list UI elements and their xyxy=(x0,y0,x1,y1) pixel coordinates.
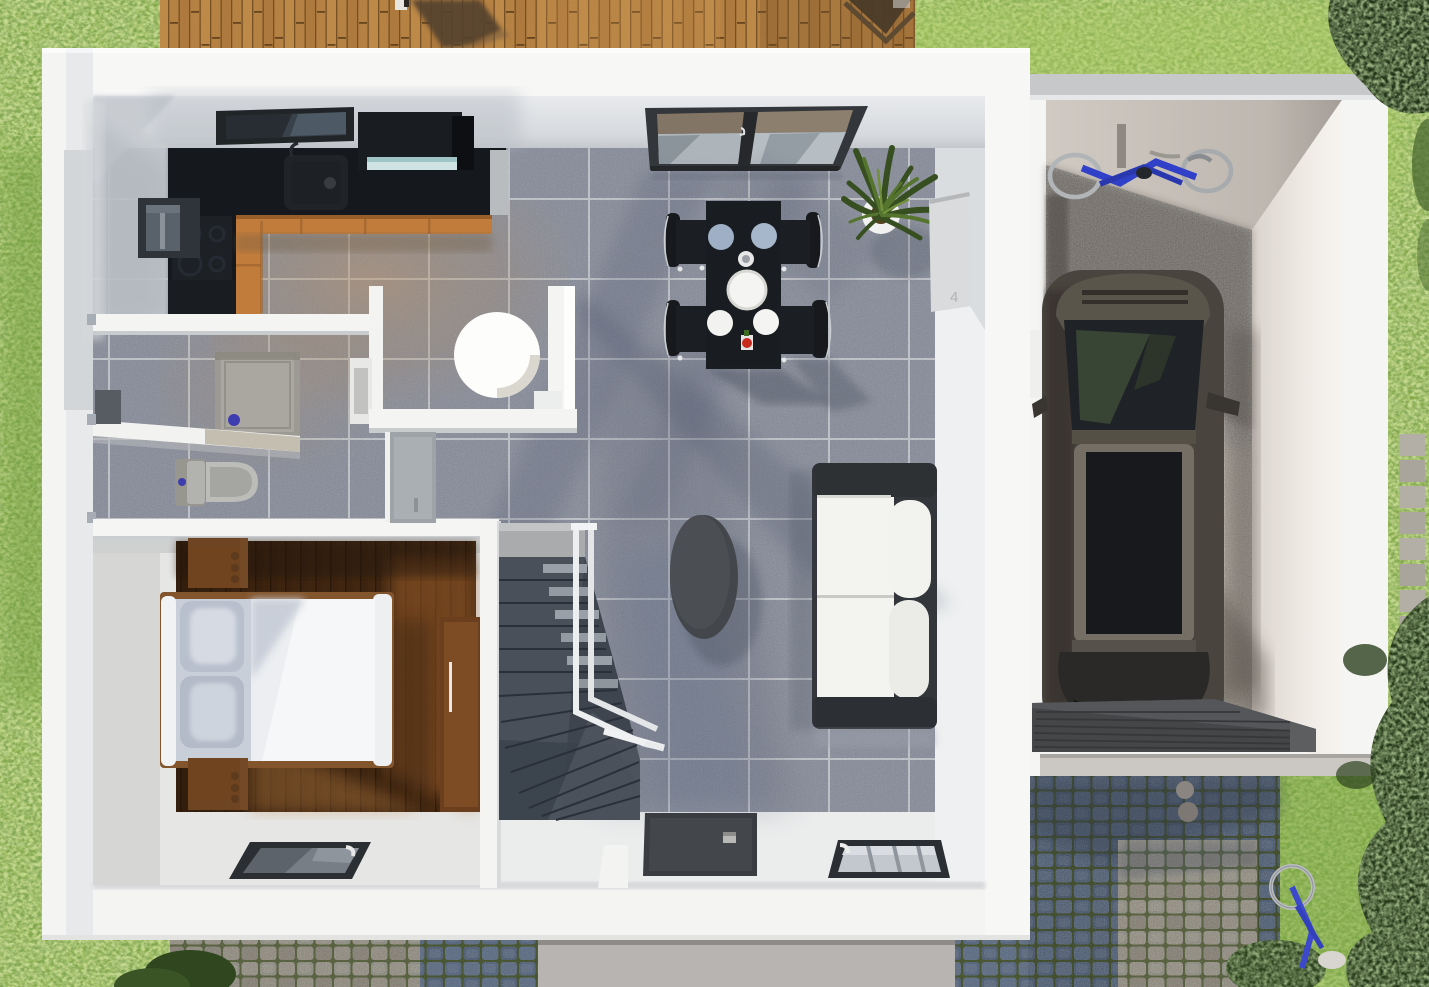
svg-text:4: 4 xyxy=(950,289,958,306)
